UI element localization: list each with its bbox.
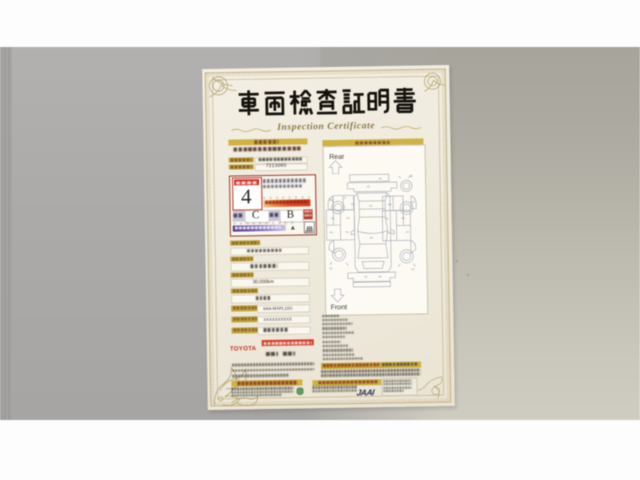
- svg-text:A1: A1: [367, 184, 371, 188]
- svg-text:U1: U1: [346, 215, 350, 219]
- svg-text:A1: A1: [330, 230, 334, 234]
- svg-text:A1: A1: [385, 216, 389, 220]
- svg-text:A1: A1: [364, 274, 368, 278]
- svg-text:A1: A1: [378, 274, 382, 278]
- svg-text:Rear: Rear: [329, 153, 345, 160]
- svg-text:A1: A1: [331, 216, 335, 220]
- svg-text:U1: U1: [406, 229, 410, 233]
- svg-text:U1: U1: [410, 173, 414, 177]
- svg-text:U1: U1: [411, 199, 415, 203]
- svg-text:A1: A1: [388, 202, 392, 206]
- svg-text:U1: U1: [411, 266, 415, 270]
- svg-text:A1: A1: [369, 203, 373, 207]
- svg-text:Front: Front: [331, 304, 348, 311]
- svg-text:U1: U1: [329, 266, 333, 270]
- svg-text:A1: A1: [370, 235, 374, 239]
- svg-text:A1: A1: [379, 176, 383, 180]
- svg-text:A1: A1: [401, 215, 405, 219]
- svg-text:A1: A1: [346, 229, 350, 233]
